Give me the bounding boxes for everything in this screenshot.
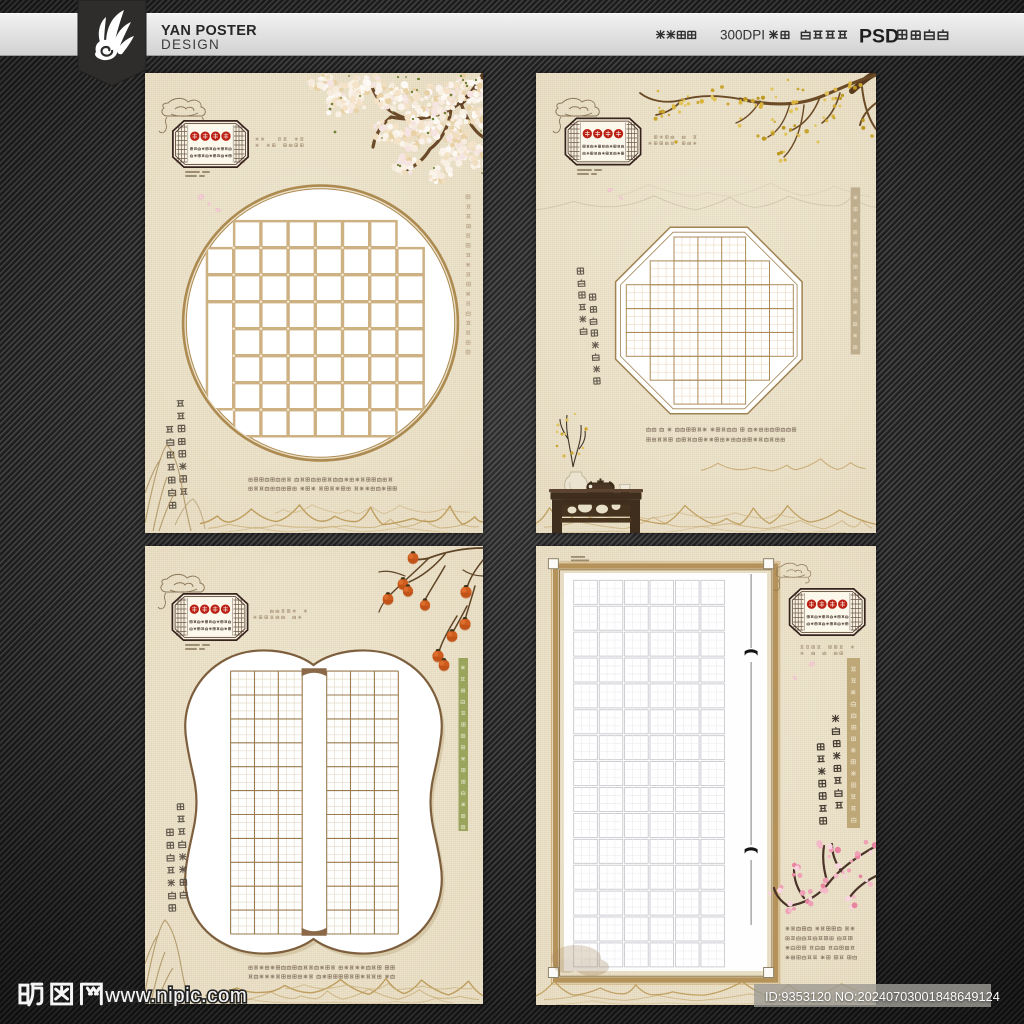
svg-text:PSD: PSD	[859, 26, 899, 48]
svg-text:www.nipic.com: www.nipic.com	[104, 985, 247, 1007]
svg-text:300DPI: 300DPI	[720, 28, 765, 43]
